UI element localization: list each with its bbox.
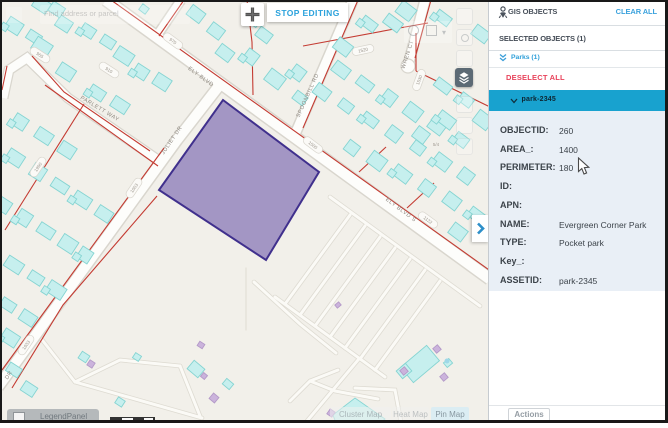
svg-text:5/4: 5/4 bbox=[433, 142, 440, 147]
